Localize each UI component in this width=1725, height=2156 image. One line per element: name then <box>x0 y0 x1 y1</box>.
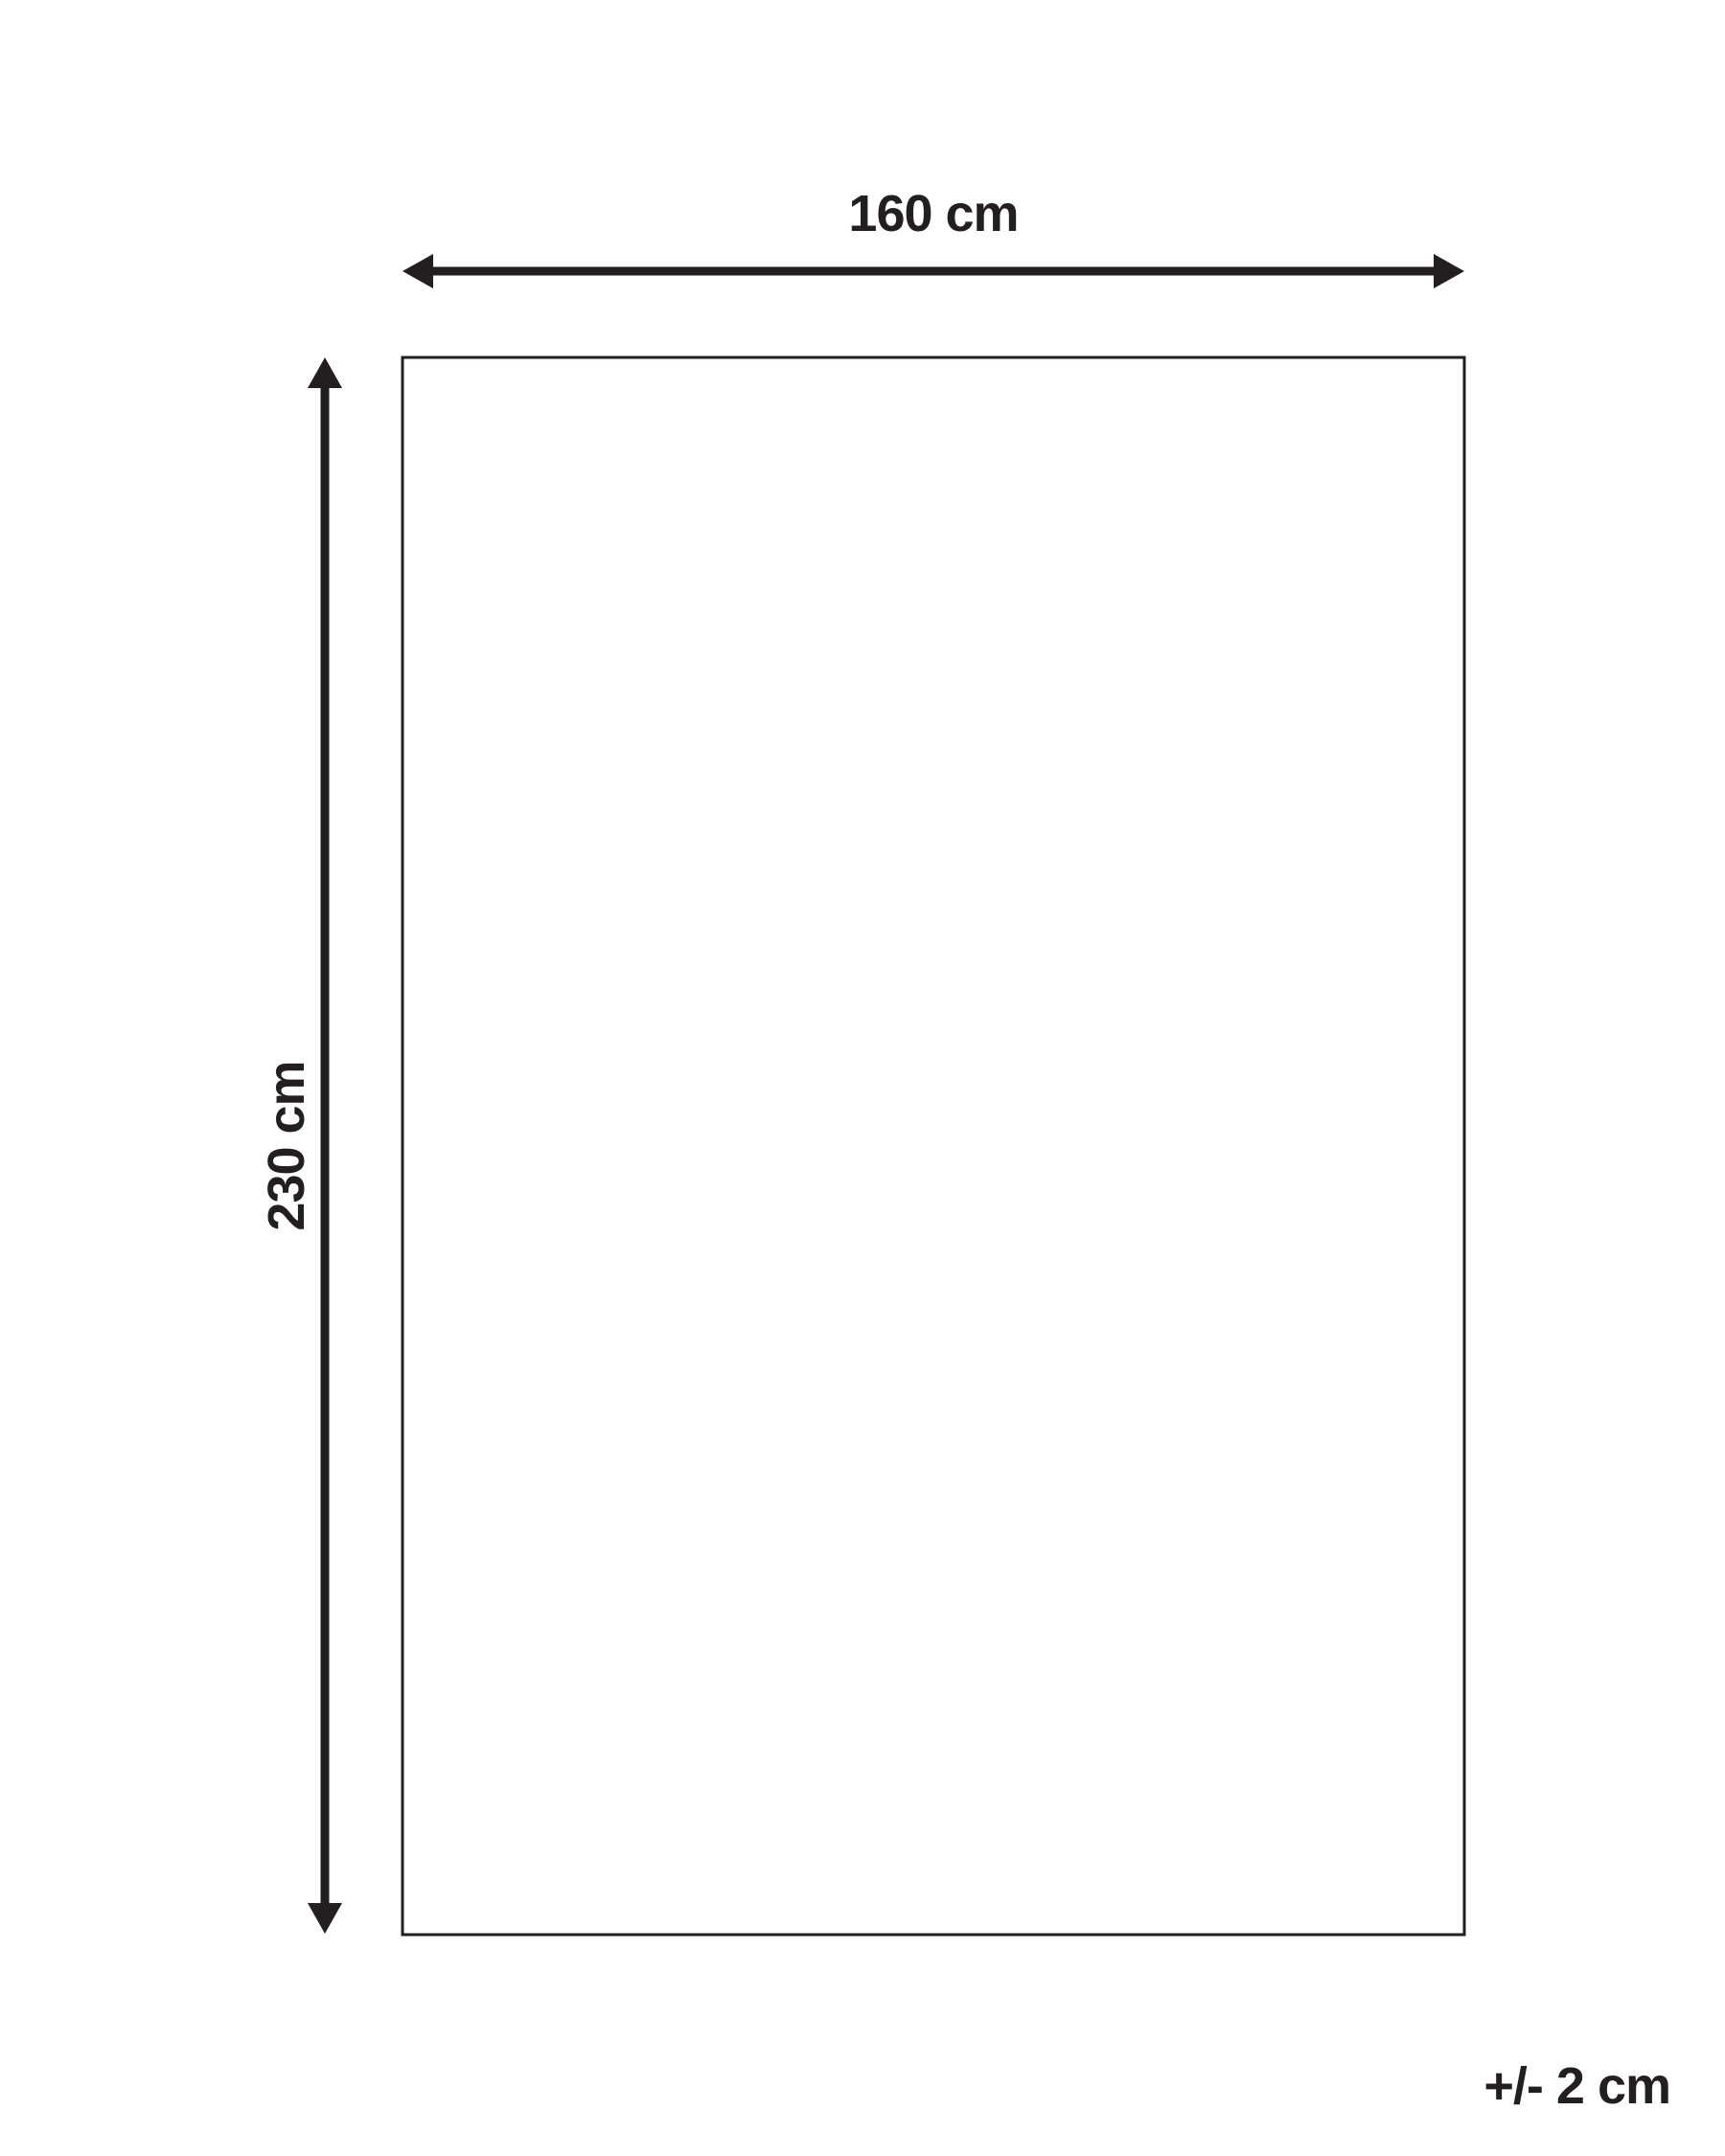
arrow-left-icon <box>402 254 433 288</box>
width-arrow <box>402 254 1464 288</box>
tolerance-label: +/- 2 cm <box>1483 2060 1670 2112</box>
width-dimension-label: 160 cm <box>848 188 1018 240</box>
dimension-diagram: 160 cm 230 cm +/- 2 cm <box>0 0 1725 2156</box>
arrow-down-icon <box>308 1903 342 1934</box>
product-outline-rect <box>402 357 1464 1935</box>
height-dimension-label: 230 cm <box>261 1061 312 1230</box>
arrow-right-icon <box>1434 254 1464 288</box>
arrow-up-icon <box>308 357 342 388</box>
